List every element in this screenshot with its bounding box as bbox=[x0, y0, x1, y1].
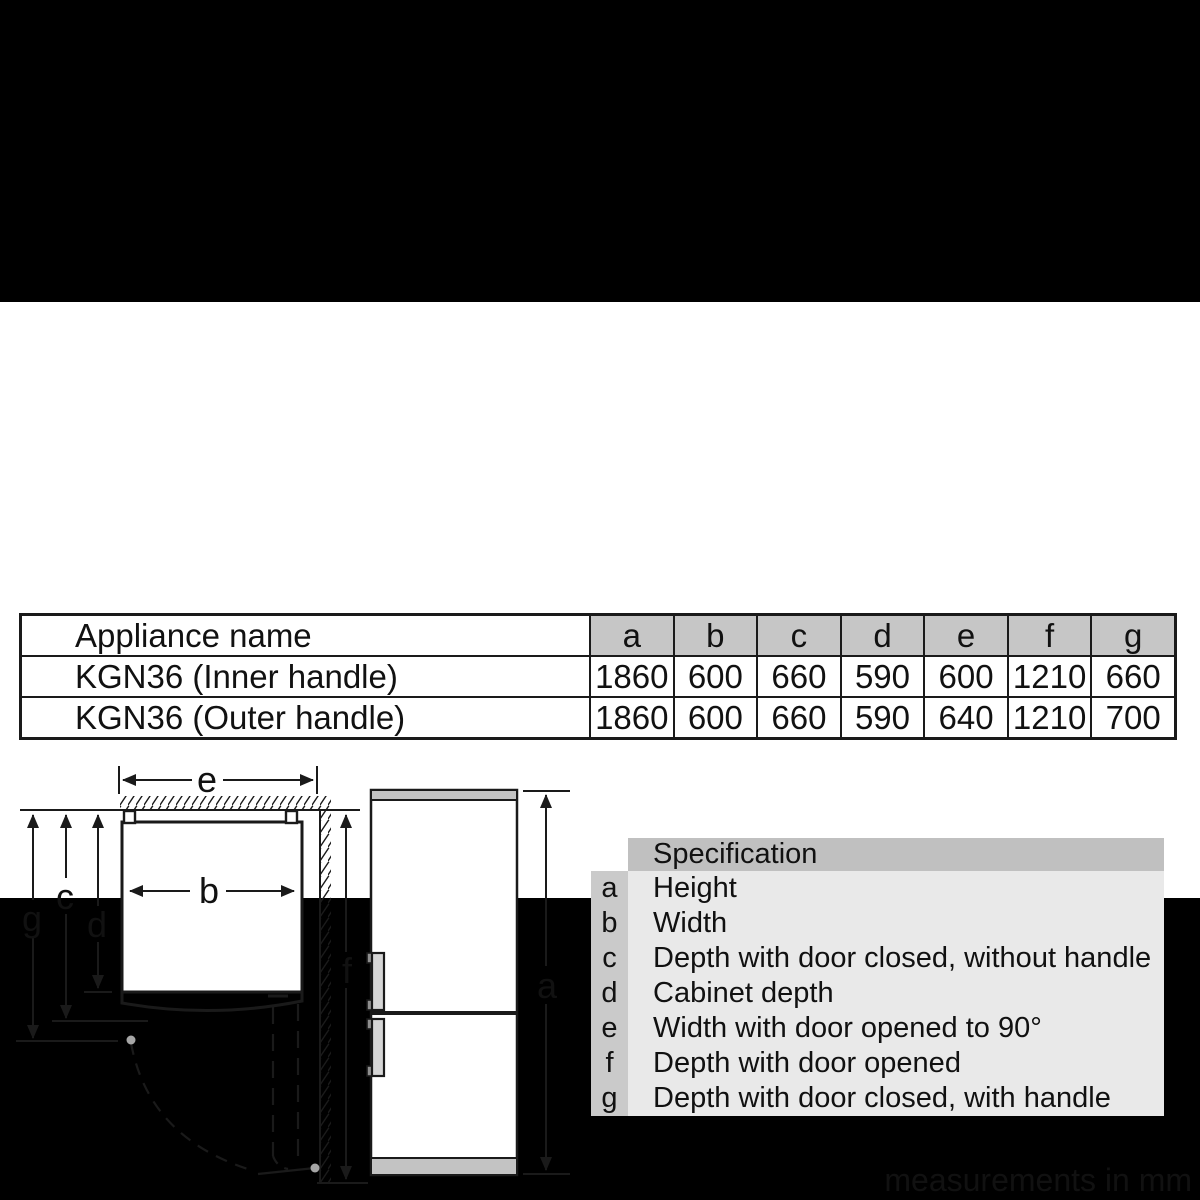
dim-label-f: f bbox=[342, 950, 353, 991]
spec-label: Depth with door closed, with handle bbox=[628, 1081, 1164, 1116]
table-cell: 640 bbox=[925, 698, 1007, 737]
wall-hatch-right bbox=[320, 810, 331, 1184]
dim-label-g: g bbox=[22, 898, 42, 939]
table-cell: 1210 bbox=[1009, 657, 1091, 696]
table-cell: 700 bbox=[1092, 698, 1174, 737]
spec-row: c Depth with door closed, without handle bbox=[591, 941, 1164, 976]
door-swing-arc bbox=[131, 1043, 254, 1171]
dim-label-e: e bbox=[197, 759, 217, 800]
table-cell: 660 bbox=[1092, 657, 1174, 696]
spec-key: e bbox=[591, 1011, 628, 1046]
top-view-drawing: e b g c bbox=[16, 759, 368, 1184]
table-cell: 600 bbox=[925, 657, 1007, 696]
table-header-col-g: g bbox=[1092, 616, 1174, 655]
spec-row: d Cabinet depth bbox=[591, 976, 1164, 1011]
table-header-col-d: d bbox=[842, 616, 924, 655]
fridge-plinth bbox=[371, 1158, 517, 1175]
table-header-col-e: e bbox=[925, 616, 1007, 655]
fridge-body bbox=[371, 790, 517, 1175]
spec-label: Width bbox=[628, 906, 1164, 941]
spec-row: g Depth with door closed, with handle bbox=[591, 1081, 1164, 1116]
installation-diagram: e b g c bbox=[0, 742, 620, 1200]
freezer-door-handle bbox=[372, 1019, 384, 1076]
dim-label-b: b bbox=[199, 870, 219, 911]
measurements-unit-note: measurements in mm bbox=[884, 1162, 1192, 1199]
table-header-col-a: a bbox=[591, 616, 673, 655]
spec-key: b bbox=[591, 906, 628, 941]
spec-row: b Width bbox=[591, 906, 1164, 941]
spec-key: f bbox=[591, 1046, 628, 1081]
table-cell: 600 bbox=[675, 698, 757, 737]
spec-label: Height bbox=[628, 871, 1164, 906]
specification-title: Specification bbox=[628, 838, 1164, 871]
spec-label: Depth with door opened bbox=[628, 1046, 1164, 1081]
table-cell: 600 bbox=[675, 657, 757, 696]
spec-key: c bbox=[591, 941, 628, 976]
dimensions-table: Appliance name a b c d e f g KGN36 (Inne… bbox=[19, 613, 1177, 740]
table-cell: 1860 bbox=[591, 657, 673, 696]
spec-key: a bbox=[591, 871, 628, 906]
table-cell: 590 bbox=[842, 698, 924, 737]
spec-label: Cabinet depth bbox=[628, 976, 1164, 1011]
table-header-col-c: c bbox=[758, 616, 840, 655]
table-header-appliance-name: Appliance name bbox=[22, 616, 589, 655]
table-cell: 1210 bbox=[1009, 698, 1091, 737]
table-cell: 1860 bbox=[591, 698, 673, 737]
fridge-top-panel bbox=[371, 790, 517, 800]
table-row-name: KGN36 (Inner handle) bbox=[22, 657, 589, 696]
specification-legend: a Height b Width c Depth with door close… bbox=[591, 871, 1164, 1116]
spec-key: g bbox=[591, 1081, 628, 1116]
spec-sheet-page: Appliance name a b c d e f g KGN36 (Inne… bbox=[0, 0, 1200, 1200]
door-open-bottom bbox=[273, 1156, 288, 1169]
fridge-door-handle bbox=[372, 953, 384, 1010]
table-cell: 660 bbox=[758, 657, 840, 696]
hinge-dot bbox=[311, 1164, 320, 1173]
spec-row: e Width with door opened to 90° bbox=[591, 1011, 1164, 1046]
spec-label: Width with door opened to 90° bbox=[628, 1011, 1164, 1046]
table-row-name: KGN36 (Outer handle) bbox=[22, 698, 589, 737]
wall-hatch-top bbox=[120, 796, 331, 810]
front-view-drawing: a bbox=[367, 790, 570, 1175]
spec-label: Depth with door closed, without handle bbox=[628, 941, 1164, 976]
table-cell: 590 bbox=[842, 657, 924, 696]
wall-spacer-right bbox=[286, 811, 297, 823]
spec-key: d bbox=[591, 976, 628, 1011]
table-cell: 660 bbox=[758, 698, 840, 737]
spec-row: a Height bbox=[591, 871, 1164, 906]
dim-label-c: c bbox=[56, 876, 74, 917]
dim-label-d: d bbox=[87, 904, 107, 945]
content-area: Appliance name a b c d e f g KGN36 (Inne… bbox=[0, 302, 1200, 898]
table-header-col-b: b bbox=[675, 616, 757, 655]
dim-label-a: a bbox=[537, 965, 558, 1006]
table-header-col-f: f bbox=[1009, 616, 1091, 655]
door-corner-dot bbox=[127, 1036, 136, 1045]
spec-row: f Depth with door opened bbox=[591, 1046, 1164, 1081]
wall-spacer-left bbox=[124, 811, 135, 823]
